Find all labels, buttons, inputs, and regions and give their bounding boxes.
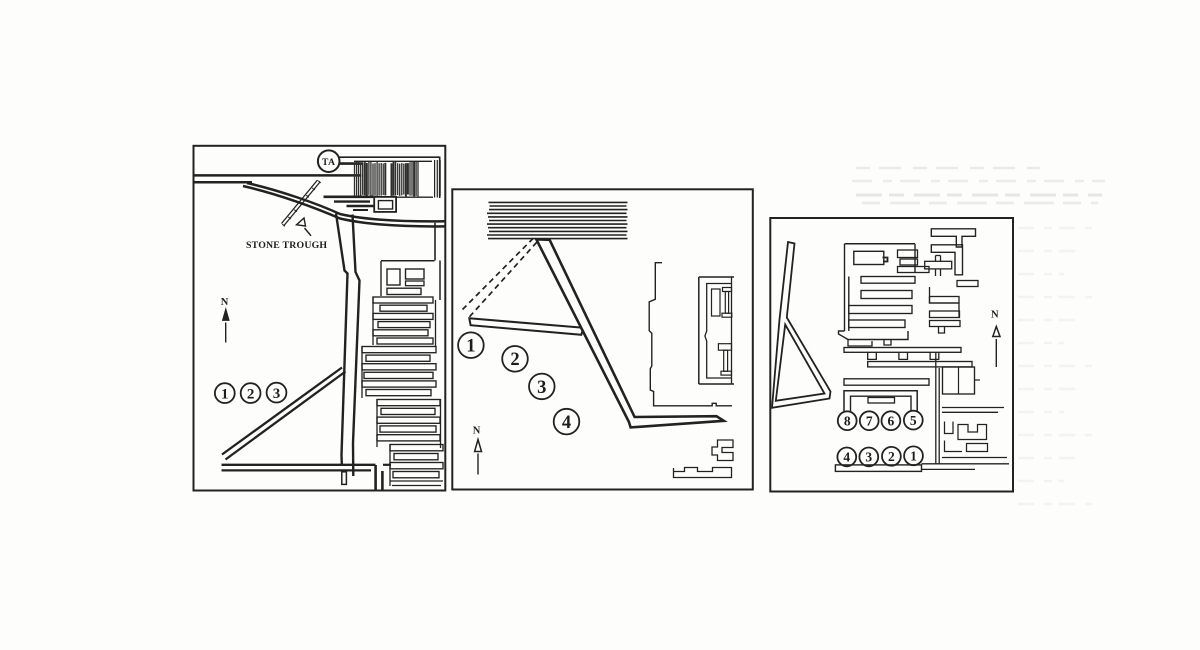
svg-text:2: 2 bbox=[888, 449, 895, 464]
svg-text:3: 3 bbox=[865, 450, 872, 465]
svg-text:STONE TROUGH: STONE TROUGH bbox=[246, 240, 327, 251]
svg-text:N: N bbox=[473, 426, 481, 437]
svg-text:4: 4 bbox=[843, 450, 850, 465]
svg-text:5: 5 bbox=[910, 413, 917, 428]
svg-text:N: N bbox=[221, 297, 229, 308]
svg-text:3: 3 bbox=[537, 378, 546, 398]
svg-text:1: 1 bbox=[466, 337, 475, 357]
svg-text:TA: TA bbox=[322, 158, 336, 168]
svg-text:N: N bbox=[991, 310, 999, 321]
svg-text:8: 8 bbox=[844, 413, 851, 428]
svg-text:1: 1 bbox=[221, 386, 229, 402]
svg-text:6: 6 bbox=[888, 413, 895, 428]
svg-text:4: 4 bbox=[562, 413, 571, 433]
svg-text:2: 2 bbox=[510, 350, 519, 370]
svg-text:7: 7 bbox=[866, 413, 873, 428]
svg-text:1: 1 bbox=[910, 448, 917, 463]
svg-text:3: 3 bbox=[273, 386, 281, 402]
svg-text:2: 2 bbox=[247, 386, 255, 402]
